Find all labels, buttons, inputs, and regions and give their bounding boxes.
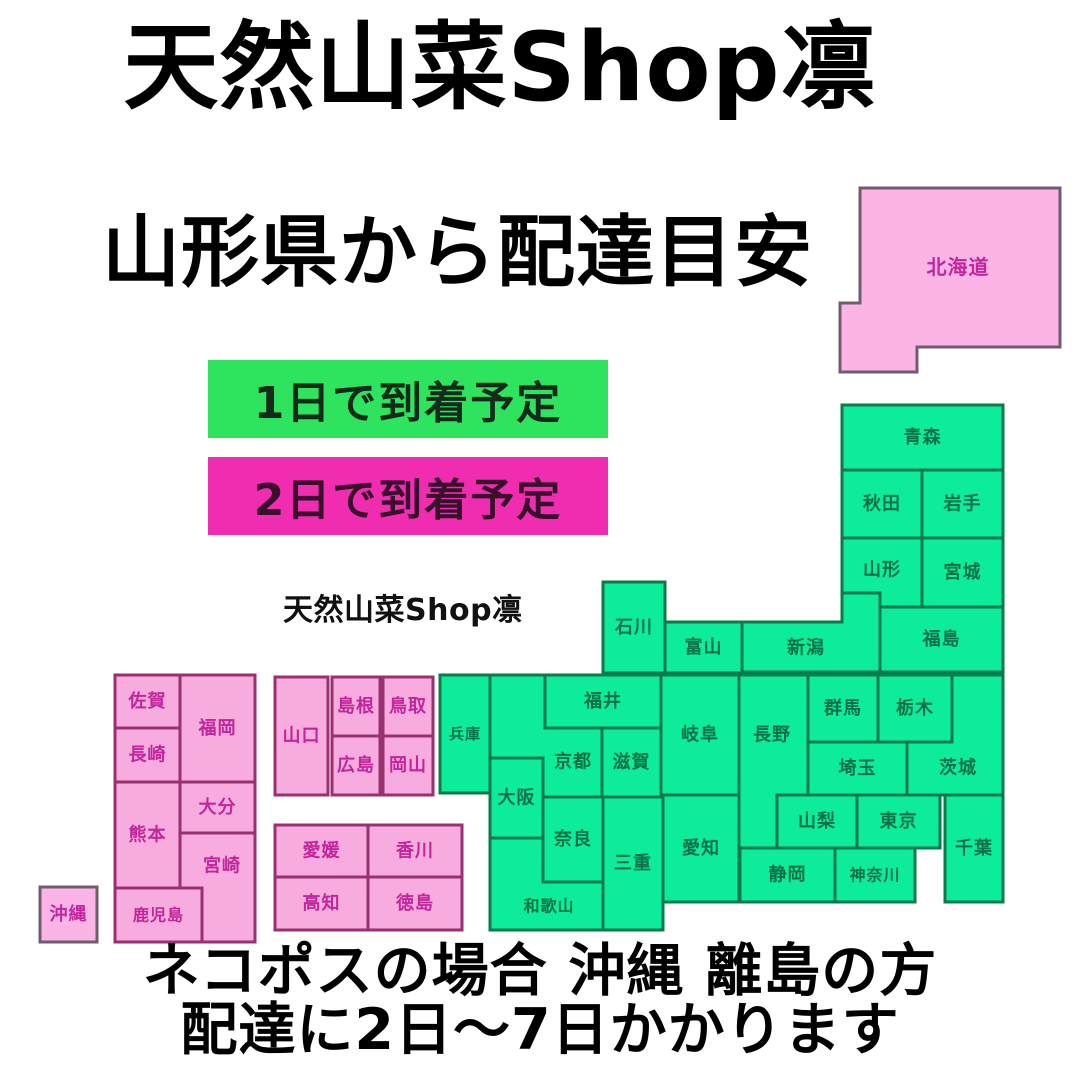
prefecture-label-kagoshima: 鹿児島 bbox=[133, 906, 184, 925]
prefecture-label-miyagi: 宮城 bbox=[944, 561, 982, 583]
prefecture-label-wakayama: 和歌山 bbox=[523, 897, 574, 916]
prefecture-label-tokyo: 東京 bbox=[880, 810, 918, 832]
prefecture-label-fukui: 福井 bbox=[583, 690, 622, 712]
prefecture-label-yamagata: 山形 bbox=[863, 560, 901, 581]
prefecture-label-ibaraki: 茨城 bbox=[939, 757, 977, 779]
prefecture-label-hyogo: 兵庫 bbox=[449, 725, 481, 743]
prefecture-label-nara: 奈良 bbox=[553, 828, 592, 850]
footer-note: ネコポスの場合 沖縄 離島の方 配達に2日〜7日かかります bbox=[0, 942, 1080, 1061]
prefecture-label-shimane: 島根 bbox=[337, 695, 375, 717]
prefecture-label-aichi: 愛知 bbox=[682, 837, 720, 859]
prefecture-label-yamaguchi: 山口 bbox=[283, 726, 321, 747]
delivery-map-poster: 天然山菜Shop凛 山形県から配達目安 1日で到着予定 2日で到着予定 天然山菜… bbox=[0, 0, 1080, 1080]
prefecture-label-tottori: 鳥取 bbox=[389, 695, 427, 717]
prefecture-label-miyazaki: 宮崎 bbox=[203, 855, 241, 877]
prefecture-label-chiba: 千葉 bbox=[955, 838, 993, 859]
prefecture-label-kochi: 高知 bbox=[303, 892, 341, 914]
prefecture-label-osaka: 大阪 bbox=[498, 787, 536, 809]
prefecture-label-fukushima: 福島 bbox=[922, 628, 961, 650]
prefecture-label-kumamoto: 熊本 bbox=[129, 824, 167, 846]
prefecture-label-saga: 佐賀 bbox=[128, 690, 167, 712]
prefecture-label-oita: 大分 bbox=[199, 796, 237, 818]
prefecture-label-hiroshima: 広島 bbox=[337, 754, 375, 776]
prefecture-label-saitama: 埼玉 bbox=[839, 757, 877, 779]
prefecture-label-kyoto: 京都 bbox=[554, 751, 592, 773]
prefecture-label-akita: 秋田 bbox=[863, 493, 901, 515]
prefecture-label-okayama: 岡山 bbox=[389, 755, 427, 776]
prefecture-label-kagawa: 香川 bbox=[395, 841, 434, 862]
prefecture-label-ehime: 愛媛 bbox=[303, 840, 341, 862]
japan-prefecture-map: 北海道青森秋田岩手山形宮城福島新潟富山石川福井岐阜長野群馬栃木茨城埼玉山梨東京千… bbox=[0, 0, 1080, 1080]
prefecture-label-gunma: 群馬 bbox=[824, 697, 862, 719]
prefecture-hokkaido bbox=[840, 188, 1060, 372]
prefecture-label-toyama: 富山 bbox=[685, 636, 723, 658]
prefecture-label-tochigi: 栃木 bbox=[896, 697, 934, 719]
prefecture-label-hokkaido: 北海道 bbox=[927, 255, 990, 279]
prefecture-label-nagano: 長野 bbox=[753, 725, 791, 746]
prefecture-label-tokushima: 徳島 bbox=[395, 892, 434, 914]
footer-line-1: ネコポスの場合 沖縄 離島の方 bbox=[0, 942, 1080, 1001]
prefecture-label-niigata: 新潟 bbox=[787, 637, 825, 659]
prefecture-label-iwate: 岩手 bbox=[943, 493, 982, 515]
prefecture-niigata bbox=[742, 593, 880, 672]
prefecture-label-shiga: 滋賀 bbox=[613, 751, 651, 773]
prefecture-label-aomori: 青森 bbox=[904, 426, 942, 448]
prefecture-label-kanagawa: 神奈川 bbox=[849, 866, 900, 885]
prefecture-label-okinawa: 沖縄 bbox=[50, 903, 88, 925]
prefecture-label-gifu: 岐阜 bbox=[681, 724, 719, 746]
prefecture-label-mie: 三重 bbox=[614, 852, 652, 874]
prefecture-label-yamanashi: 山梨 bbox=[798, 810, 836, 832]
prefecture-label-nagasaki: 長崎 bbox=[129, 744, 167, 766]
footer-line-2: 配達に2日〜7日かかります bbox=[0, 1001, 1080, 1060]
prefecture-label-fukuoka: 福岡 bbox=[198, 717, 237, 739]
prefecture-label-ishikawa: 石川 bbox=[614, 617, 653, 638]
prefecture-label-shizuoka: 静岡 bbox=[769, 864, 807, 886]
